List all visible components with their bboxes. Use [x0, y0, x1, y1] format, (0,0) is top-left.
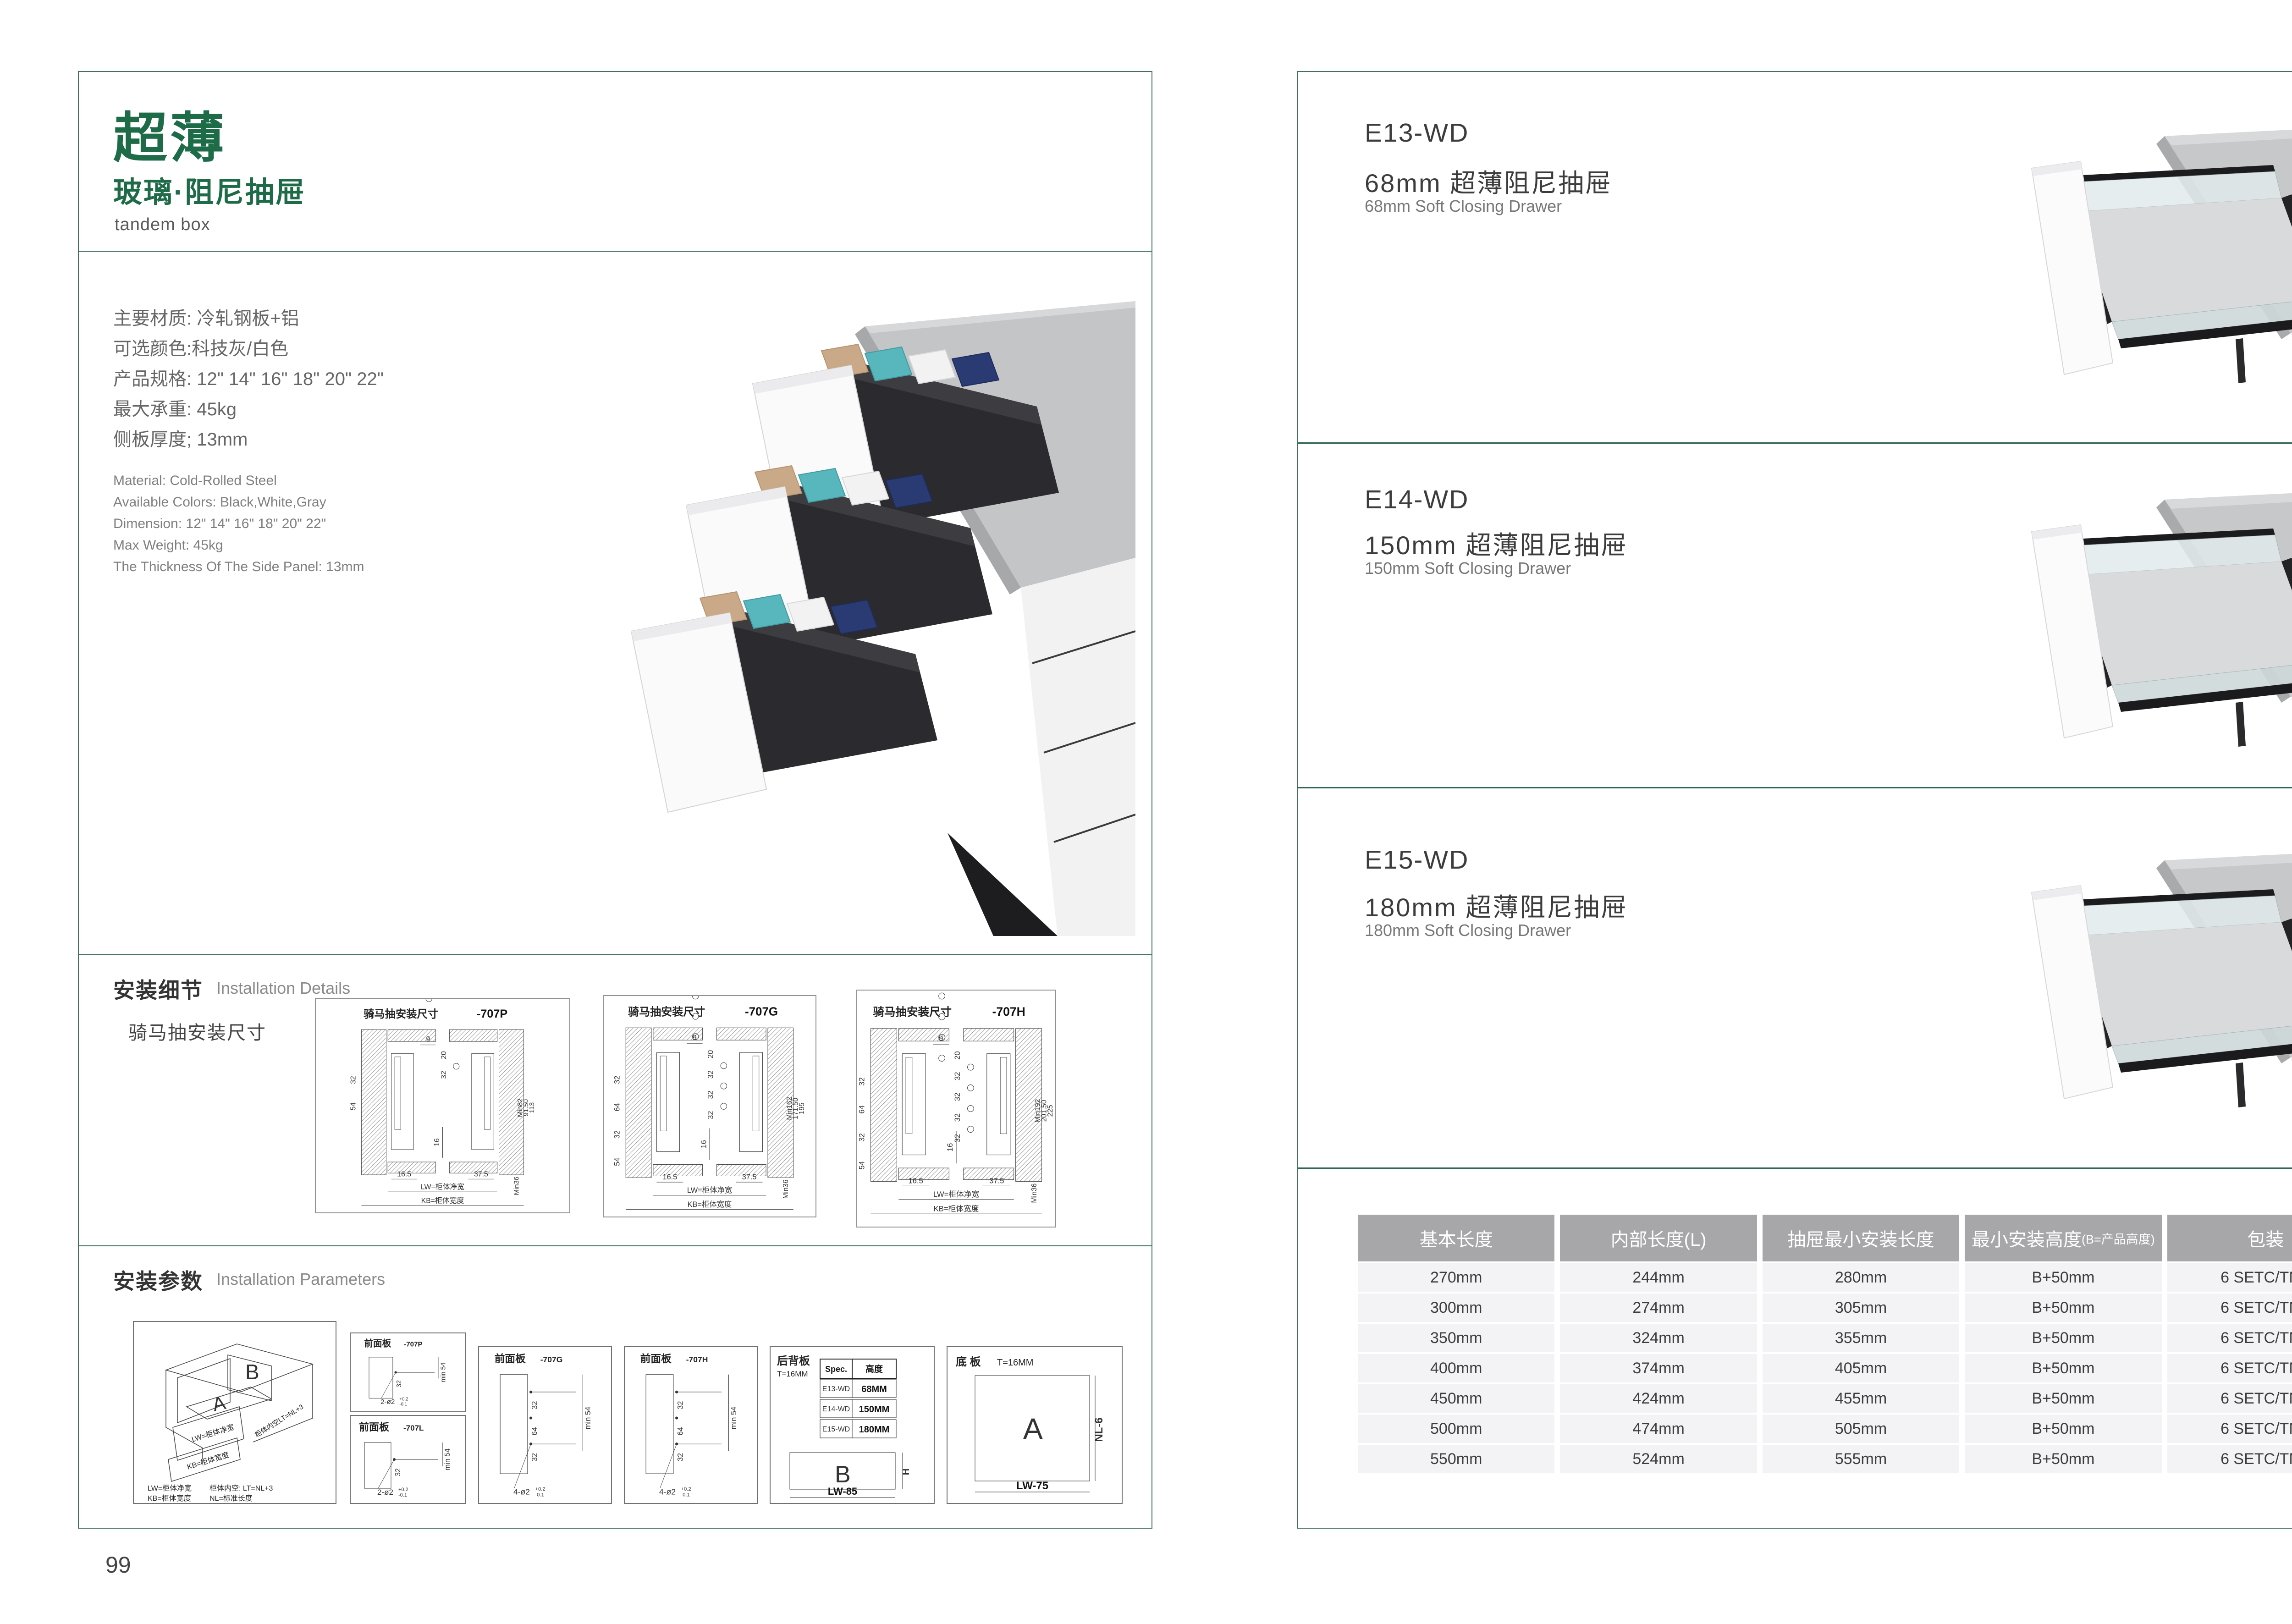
svg-text:32: 32 [953, 1113, 962, 1122]
table-header-cell: 抽屉最小安装长度 [1763, 1215, 1959, 1261]
page-right: E13-WD 68mm 超薄阻尼抽屉 68mm Soft Closing Dra… [1297, 71, 2292, 1529]
page-number-left: 99 [105, 1552, 131, 1578]
svg-text:LW=柜体净宽: LW=柜体净宽 [687, 1186, 732, 1195]
table-cell: 6 SETC/TNB [2167, 1263, 2292, 1292]
svg-text:20: 20 [707, 1050, 715, 1058]
table-header-cell: 包装 [2167, 1215, 2292, 1261]
table-cell: 6 SETC/TNB [2167, 1384, 2292, 1413]
table-cell: 405mm [1763, 1354, 1959, 1382]
table-cell: B+50mm [1965, 1263, 2161, 1292]
spec-line-cn: 可选颜色:科技灰/白色 [113, 334, 384, 364]
install-params-title-en: Installation Parameters [216, 1270, 385, 1289]
svg-text:32: 32 [530, 1453, 539, 1461]
svg-text:150MM: 150MM [859, 1404, 890, 1415]
svg-text:32: 32 [953, 1072, 962, 1081]
svg-text:min 54: min 54 [584, 1407, 592, 1429]
svg-text:H: H [901, 1469, 911, 1475]
divider [79, 1245, 1152, 1246]
svg-text:4-ø2: 4-ø2 [659, 1487, 676, 1496]
svg-text:前面板: 前面板 [364, 1338, 391, 1349]
svg-text:高度: 高度 [865, 1364, 883, 1374]
svg-text:前面板: 前面板 [359, 1421, 390, 1433]
svg-text:B: B [245, 1360, 259, 1384]
table-cell: 424mm [1560, 1384, 1757, 1413]
table-cell: 555mm [1763, 1445, 1959, 1473]
table-row: 300mm274mm305mmB+50mm6 SETC/TNB [1358, 1294, 2292, 1322]
svg-text:20: 20 [953, 1051, 962, 1060]
svg-text:Min36: Min36 [513, 1177, 520, 1195]
svg-text:64: 64 [613, 1103, 622, 1111]
table-cell: 244mm [1560, 1263, 1757, 1292]
table-cell: 6 SETC/TNB [2167, 1415, 2292, 1443]
svg-text:KB=柜体宽度: KB=柜体宽度 [186, 1451, 230, 1471]
svg-text:32: 32 [858, 1133, 866, 1142]
divider [1298, 1167, 2292, 1169]
svg-text:32: 32 [396, 1380, 403, 1387]
svg-text:32: 32 [858, 1077, 866, 1086]
svg-text:54: 54 [613, 1158, 622, 1166]
page-title: 超薄 [113, 94, 227, 172]
divider [1298, 787, 2292, 788]
product-model: E14-WD [1365, 484, 1469, 515]
specs-en: Material: Cold-Rolled SteelAvailable Col… [113, 470, 364, 578]
svg-text:-707L: -707L [403, 1424, 424, 1432]
page-subtitle-cn: 玻璃·阻尼抽屉 [113, 169, 306, 211]
svg-text:16: 16 [700, 1140, 708, 1148]
svg-text:T=16MM: T=16MM [777, 1370, 808, 1378]
divider [79, 251, 1152, 252]
svg-text:+0.2: +0.2 [399, 1397, 408, 1402]
table-row: 500mm474mm505mmB+50mm6 SETC/TNB [1358, 1415, 2292, 1443]
spec-line-en: Max Weight: 45kg [113, 534, 364, 556]
table-header-cell: 内部长度(L) [1560, 1215, 1757, 1261]
divider [1298, 442, 2292, 444]
svg-text:54: 54 [349, 1102, 357, 1111]
table-cell: 455mm [1763, 1384, 1959, 1413]
svg-text:-707G: -707G [540, 1355, 563, 1364]
install-params-title-cn: 安装参数 [113, 1264, 203, 1295]
svg-text:-0.1: -0.1 [399, 1402, 407, 1407]
spec-line-en: Available Colors: Black,White,Gray [113, 491, 364, 513]
svg-text:KB=柜体宽度: KB=柜体宽度 [934, 1204, 979, 1213]
svg-text:32: 32 [676, 1401, 684, 1409]
svg-text:Min36: Min36 [1030, 1183, 1038, 1203]
svg-text:32: 32 [676, 1453, 684, 1461]
svg-text:min 54: min 54 [730, 1407, 738, 1429]
spec-line-cn: 产品规格: 12" 14" 16" 18" 20" 22" [113, 364, 384, 394]
svg-text:NL=标准长度: NL=标准长度 [209, 1494, 253, 1503]
install-diagram-707P: 骑马抽安装尺寸-707P 9 2032 16 3254Min8291.50113… [315, 998, 570, 1213]
svg-text:-0.1: -0.1 [535, 1492, 544, 1498]
svg-text:32: 32 [440, 1071, 448, 1079]
svg-text:68MM: 68MM [861, 1384, 887, 1394]
svg-text:+0.2: +0.2 [398, 1487, 408, 1492]
table-cell: 305mm [1763, 1294, 1959, 1322]
svg-text:柜体内空LT=NL+3: 柜体内空LT=NL+3 [253, 1403, 305, 1439]
table-row: 550mm524mm555mmB+50mm6 SETC/TNB [1358, 1445, 2292, 1473]
svg-text:-0.1: -0.1 [398, 1492, 407, 1498]
svg-text:32: 32 [349, 1076, 357, 1084]
table-cell: B+50mm [1965, 1445, 2161, 1473]
spec-line-cn: 最大承重: 45kg [113, 394, 384, 424]
svg-text:骑马抽安装尺寸: 骑马抽安装尺寸 [628, 1005, 705, 1018]
table-cell: 6 SETC/TNB [2167, 1445, 2292, 1473]
table-cell: 324mm [1560, 1324, 1757, 1352]
svg-text:32: 32 [707, 1070, 715, 1079]
spec-table-header: 基本长度内部长度(L)抽屉最小安装长度最小安装高度(B=产品高度)包装 [1358, 1215, 2292, 1261]
table-cell: 6 SETC/TNB [2167, 1294, 2292, 1322]
product-name-en: 180mm Soft Closing Drawer [1365, 921, 1571, 940]
svg-text:9: 9 [939, 1034, 943, 1043]
install-details-subtitle: 骑马抽安装尺寸 [128, 1017, 266, 1045]
page-subtitle-en: tandem box [115, 215, 210, 235]
svg-text:+0.2: +0.2 [535, 1486, 545, 1492]
table-cell: 450mm [1358, 1384, 1554, 1413]
svg-text:32: 32 [953, 1134, 962, 1143]
svg-text:LW=柜体净宽: LW=柜体净宽 [148, 1484, 192, 1492]
table-cell: 374mm [1560, 1354, 1757, 1382]
table-cell: 300mm [1358, 1294, 1554, 1322]
svg-text:32: 32 [707, 1111, 715, 1119]
svg-text:37.5: 37.5 [474, 1171, 488, 1178]
svg-text:A: A [1023, 1412, 1043, 1445]
svg-text:32: 32 [707, 1090, 715, 1099]
table-cell: 550mm [1358, 1445, 1554, 1473]
table-row: 450mm424mm455mmB+50mm6 SETC/TNB [1358, 1384, 2292, 1413]
svg-text:E15-WD: E15-WD [822, 1426, 850, 1433]
svg-text:E14-WD: E14-WD [822, 1405, 850, 1413]
svg-text:64: 64 [858, 1105, 866, 1114]
svg-text:前面板: 前面板 [495, 1353, 526, 1365]
table-cell: B+50mm [1965, 1384, 2161, 1413]
spec-table-body: 270mm244mm280mmB+50mm6 SETC/TNB300mm274m… [1358, 1263, 2292, 1473]
svg-text:32: 32 [394, 1468, 402, 1476]
table-cell: B+50mm [1965, 1324, 2161, 1352]
front-panel-707G: 前面板-707G 326432 min 54 4-ø2+0.2-0.1 [478, 1346, 612, 1504]
front-panel-707P: 前面板-707P 32 min 54 2-ø2+0.2-0.1 [350, 1332, 466, 1412]
svg-text:16.5: 16.5 [908, 1176, 923, 1185]
svg-text:-707P: -707P [404, 1341, 423, 1349]
svg-text:LW-85: LW-85 [828, 1486, 857, 1497]
spec-line-en: Material: Cold-Rolled Steel [113, 470, 364, 491]
svg-text:min 54: min 54 [440, 1363, 447, 1382]
install-diagram-707G: 骑马抽安装尺寸-707G 9 20323232 16 32643254Min16… [603, 995, 816, 1217]
product-render [1915, 488, 2292, 761]
svg-text:195: 195 [798, 1102, 806, 1114]
svg-text:-707H: -707H [686, 1355, 708, 1364]
bottom-panel-diagram: 底 板T=16MM A NL-6 LW-75 [947, 1346, 1123, 1504]
svg-text:E13-WD: E13-WD [822, 1385, 850, 1393]
install-details-title-en: Installation Details [216, 979, 350, 998]
svg-text:前面板: 前面板 [640, 1353, 672, 1365]
product-model: E13-WD [1365, 118, 1469, 148]
svg-text:32: 32 [953, 1093, 962, 1101]
svg-text:-707G: -707G [745, 1004, 778, 1018]
svg-text:32: 32 [613, 1130, 622, 1139]
table-row: 400mm374mm405mmB+50mm6 SETC/TNB [1358, 1354, 2292, 1382]
table-cell: B+50mm [1965, 1354, 2161, 1382]
spec-line-cn: 主要材质: 冷轧钢板+铝 [113, 303, 384, 334]
front-panel-707H: 前面板-707H 326432 min 54 4-ø2+0.2-0.1 [624, 1346, 758, 1504]
table-cell: 350mm [1358, 1324, 1554, 1352]
svg-text:后背板: 后背板 [777, 1355, 810, 1367]
product-photo [544, 301, 1135, 936]
svg-text:Min36: Min36 [782, 1179, 790, 1199]
svg-text:113: 113 [529, 1102, 536, 1113]
svg-text:32: 32 [530, 1401, 539, 1409]
svg-text:64: 64 [530, 1427, 539, 1435]
table-cell: 270mm [1358, 1263, 1554, 1292]
svg-text:9: 9 [693, 1034, 697, 1042]
iso-cabinet-diagram: B A LW=柜体净宽 KB=柜体宽度 柜体内空LT=NL+3 LW=柜体净宽柜… [133, 1321, 336, 1504]
svg-text:LW=柜体净宽: LW=柜体净宽 [421, 1183, 464, 1191]
table-cell: 280mm [1763, 1263, 1959, 1292]
table-header-cell: 基本长度 [1358, 1215, 1554, 1261]
install-details-title-cn: 安装细节 [113, 973, 203, 1004]
svg-text:骑马抽安装尺寸: 骑马抽安装尺寸 [873, 1005, 952, 1018]
svg-text:KB=柜体宽度: KB=柜体宽度 [688, 1200, 732, 1209]
specs-cn: 主要材质: 冷轧钢板+铝可选颜色:科技灰/白色产品规格: 12" 14" 16"… [113, 303, 384, 455]
svg-text:LW-75: LW-75 [1016, 1480, 1048, 1492]
table-cell: 400mm [1358, 1354, 1554, 1382]
svg-text:KB=柜体宽度: KB=柜体宽度 [421, 1196, 464, 1205]
table-cell: B+50mm [1965, 1294, 2161, 1322]
product-name-cn: 68mm 超薄阻尼抽屉 [1365, 163, 1612, 200]
spec-line-en: The Thickness Of The Side Panel: 13mm [113, 556, 364, 578]
front-panel-707L: 前面板-707L 32 min 54 2-ø2+0.2-0.1 [350, 1415, 466, 1504]
table-cell: 474mm [1560, 1415, 1757, 1443]
svg-text:-707H: -707H [992, 1005, 1025, 1018]
svg-text:底 板: 底 板 [956, 1355, 981, 1368]
svg-text:64: 64 [676, 1427, 684, 1435]
svg-text:柜体内空: LT=NL+3: 柜体内空: LT=NL+3 [209, 1484, 273, 1492]
svg-text:16: 16 [946, 1143, 954, 1152]
svg-text:+0.2: +0.2 [681, 1486, 691, 1492]
svg-text:225: 225 [1047, 1105, 1054, 1117]
svg-text:16: 16 [433, 1138, 441, 1146]
svg-text:37.5: 37.5 [742, 1173, 757, 1181]
table-cell: 505mm [1763, 1415, 1959, 1443]
svg-text:骑马抽安装尺寸: 骑马抽安装尺寸 [364, 1007, 438, 1020]
back-panel-diagram: 后背板T=16MM Spec.高度 E13-WD68MM E14-WD150MM… [770, 1346, 935, 1504]
svg-text:-707P: -707P [477, 1007, 507, 1020]
table-row: 350mm324mm355mmB+50mm6 SETC/TNB [1358, 1324, 2292, 1352]
svg-text:T=16MM: T=16MM [997, 1358, 1033, 1368]
svg-text:16.5: 16.5 [663, 1173, 678, 1181]
install-diagram-707H: 骑马抽安装尺寸-707H 9 2032323232 16 32643254Min… [856, 990, 1056, 1228]
svg-text:Spec.: Spec. [825, 1365, 847, 1374]
svg-text:LW=柜体净宽: LW=柜体净宽 [933, 1190, 980, 1199]
product-name-cn: 180mm 超薄阻尼抽屉 [1365, 887, 1628, 924]
svg-text:KB=柜体宽度: KB=柜体宽度 [148, 1494, 191, 1503]
table-cell: B+50mm [1965, 1415, 2161, 1443]
svg-text:16.5: 16.5 [397, 1171, 411, 1178]
svg-text:20: 20 [440, 1051, 448, 1059]
spec-table: 基本长度内部长度(L)抽屉最小安装长度最小安装高度(B=产品高度)包装 270m… [1358, 1215, 2292, 1475]
svg-text:4-ø2: 4-ø2 [513, 1487, 530, 1496]
table-cell: 355mm [1763, 1324, 1959, 1352]
table-cell: 6 SETC/TNB [2167, 1354, 2292, 1382]
divider [79, 954, 1152, 955]
svg-text:-0.1: -0.1 [681, 1492, 690, 1498]
table-cell: 524mm [1560, 1445, 1757, 1473]
table-cell: 500mm [1358, 1415, 1554, 1443]
svg-text:B: B [835, 1461, 851, 1488]
page-left: 超薄 玻璃·阻尼抽屉 tandem box 主要材质: 冷轧钢板+铝可选颜色:科… [78, 71, 1152, 1529]
table-header-cell: 最小安装高度(B=产品高度) [1965, 1215, 2161, 1261]
svg-text:2-ø2: 2-ø2 [377, 1488, 393, 1497]
spec-line-en: Dimension: 12" 14" 16" 18" 20" 22" [113, 513, 364, 534]
svg-text:min 54: min 54 [444, 1448, 452, 1470]
product-name-en: 150mm Soft Closing Drawer [1365, 559, 1571, 578]
catalog-spread: 超薄 玻璃·阻尼抽屉 tandem box 主要材质: 冷轧钢板+铝可选颜色:科… [0, 0, 2292, 1624]
svg-text:32: 32 [613, 1076, 622, 1084]
product-model: E15-WD [1365, 845, 1469, 875]
svg-text:37.5: 37.5 [989, 1176, 1004, 1185]
svg-text:NL-6: NL-6 [1093, 1417, 1105, 1442]
svg-text:2-ø2: 2-ø2 [380, 1398, 395, 1406]
svg-text:180MM: 180MM [859, 1425, 890, 1435]
product-render [1915, 849, 2292, 1122]
table-cell: 274mm [1560, 1294, 1757, 1322]
product-name-cn: 150mm 超薄阻尼抽屉 [1365, 525, 1628, 562]
spec-line-cn: 侧板厚度; 13mm [113, 424, 384, 455]
table-cell: 6 SETC/TNB [2167, 1324, 2292, 1352]
svg-text:9: 9 [426, 1035, 430, 1043]
svg-text:54: 54 [858, 1161, 866, 1170]
product-render [1915, 125, 2292, 397]
product-name-en: 68mm Soft Closing Drawer [1365, 197, 1562, 216]
table-row: 270mm244mm280mmB+50mm6 SETC/TNB [1358, 1263, 2292, 1292]
